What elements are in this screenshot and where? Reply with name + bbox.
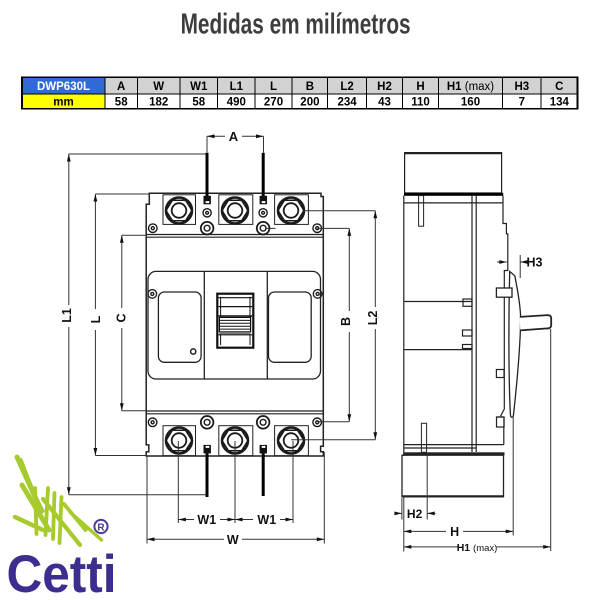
svg-text:H2: H2: [377, 81, 392, 93]
svg-text:C: C: [555, 81, 563, 93]
svg-text:C: C: [115, 313, 129, 322]
svg-text:W: W: [227, 533, 239, 547]
svg-text:Cetti: Cetti: [7, 545, 117, 600]
svg-text:L: L: [270, 81, 277, 93]
svg-text:H3: H3: [514, 81, 529, 93]
svg-text:B: B: [306, 81, 314, 93]
svg-text:W1: W1: [190, 81, 208, 93]
svg-text:A: A: [229, 129, 239, 144]
svg-text:L2: L2: [340, 81, 353, 93]
svg-text:43: 43: [378, 97, 391, 109]
svg-text:H3: H3: [527, 256, 543, 270]
svg-text:234: 234: [338, 97, 358, 109]
svg-text:W: W: [153, 81, 164, 93]
svg-text:H: H: [416, 81, 424, 93]
svg-text:58: 58: [115, 97, 128, 109]
svg-text:L1: L1: [60, 308, 74, 323]
svg-text:H: H: [450, 525, 459, 539]
svg-text:DWP630L: DWP630L: [37, 81, 90, 93]
svg-text:A: A: [117, 81, 125, 93]
svg-text:H1 (max): H1 (max): [447, 81, 494, 93]
svg-text:B: B: [339, 317, 353, 326]
svg-text:110: 110: [411, 97, 430, 109]
svg-text:R: R: [97, 522, 105, 533]
svg-text:W1: W1: [197, 513, 216, 527]
svg-text:182: 182: [149, 97, 168, 109]
svg-text:mm: mm: [53, 97, 73, 109]
svg-text:W1: W1: [257, 513, 276, 527]
svg-text:Medidas em milímetros: Medidas em milímetros: [181, 9, 411, 41]
svg-text:270: 270: [264, 97, 283, 109]
svg-text:490: 490: [227, 97, 246, 109]
svg-text:L2: L2: [366, 311, 380, 326]
svg-text:L1: L1: [230, 81, 244, 93]
svg-text:7: 7: [519, 97, 525, 109]
svg-text:H1 (max): H1 (max): [457, 542, 498, 554]
svg-text:160: 160: [461, 97, 480, 109]
svg-text:134: 134: [550, 97, 570, 109]
svg-text:H2: H2: [407, 507, 423, 521]
svg-text:58: 58: [192, 97, 205, 109]
svg-text:L: L: [89, 315, 103, 323]
svg-text:200: 200: [300, 97, 319, 109]
